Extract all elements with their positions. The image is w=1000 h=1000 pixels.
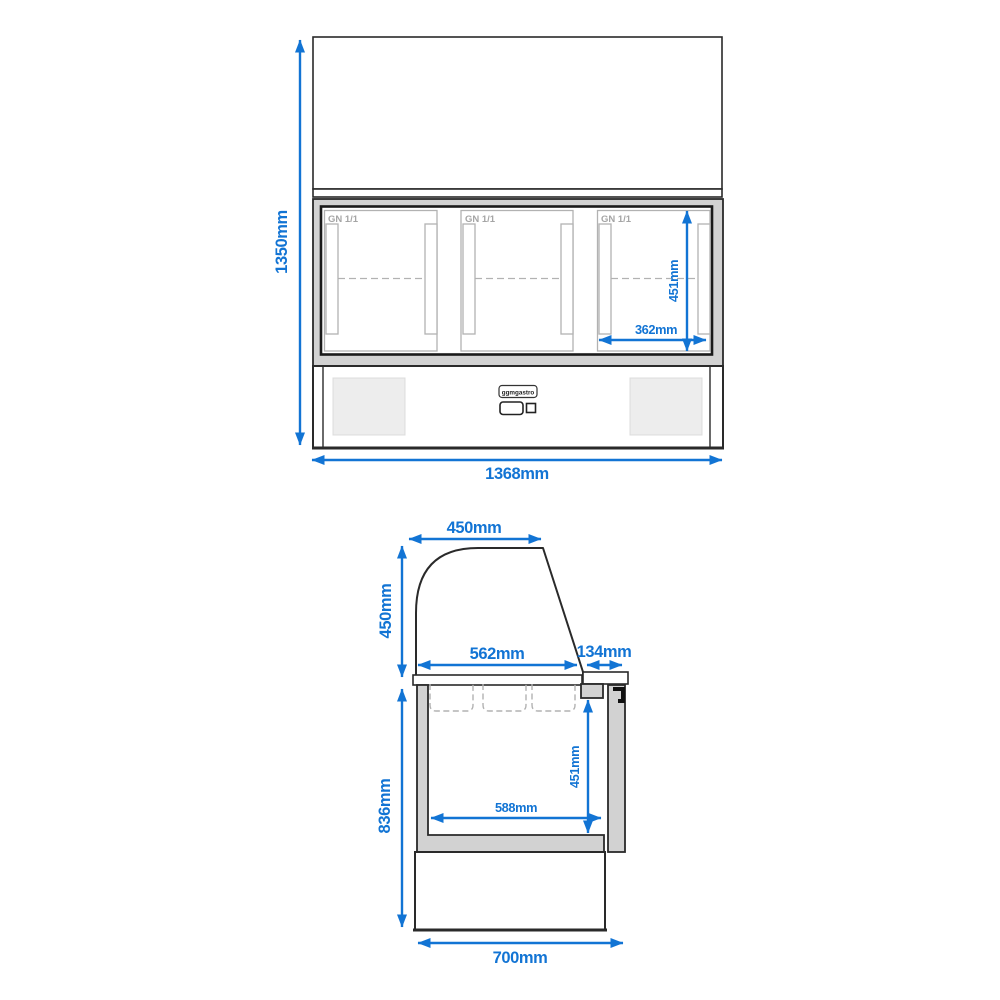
door-stile-right: [698, 224, 710, 334]
lower-cabinet: [415, 852, 605, 930]
gn-label: GN 1/1: [465, 214, 496, 225]
dim-overall-height: 1350mm: [273, 40, 300, 445]
controller-display: [500, 402, 523, 415]
dim-board-depth: 134mm: [577, 643, 632, 665]
dim-label-1350: 1350mm: [273, 210, 291, 274]
gn-label: GN 1/1: [601, 214, 632, 225]
door-stile-right: [425, 224, 437, 334]
technical-drawing-page: GN 1/1 GN 1/1 GN 1/1 ggmgastro: [0, 0, 1000, 1000]
dim-overall-width: 1368mm: [312, 460, 722, 483]
dim-well-depth: 588mm: [431, 800, 601, 818]
dim-label-562: 562mm: [470, 645, 525, 663]
cutting-board: [583, 672, 628, 684]
dim-label-134: 134mm: [577, 643, 632, 661]
gn-label: GN 1/1: [328, 214, 359, 225]
dim-well-height: 451mm: [567, 700, 588, 833]
front-top-strip: [313, 189, 722, 197]
controller-button: [527, 404, 536, 413]
gn-pan-dashed-3: [532, 684, 575, 711]
gn-pan-dashed-1: [430, 684, 473, 711]
dim-label-1368: 1368mm: [485, 465, 549, 483]
dim-label-700: 700mm: [493, 949, 548, 967]
front-view: GN 1/1 GN 1/1 GN 1/1 ggmgastro: [273, 37, 724, 483]
gn-pan-dashed-2: [483, 684, 526, 711]
dim-label-450-left: 450mm: [377, 584, 395, 639]
dim-label-451-side: 451mm: [567, 746, 582, 788]
dim-body-height: 836mm: [376, 689, 402, 927]
door-stile-left: [463, 224, 475, 334]
board-support-block: [581, 684, 603, 698]
door-stile-left: [599, 224, 611, 334]
dim-glass-height: 450mm: [377, 546, 402, 677]
door-stile-left: [326, 224, 338, 334]
rear-panel: [608, 685, 625, 852]
brand-logo-text: ggmgastro: [502, 389, 535, 396]
dimension-drawing: GN 1/1 GN 1/1 GN 1/1 ggmgastro: [0, 0, 1000, 1000]
worktop: [413, 675, 582, 685]
dim-glass-depth: 450mm: [409, 519, 541, 539]
dim-overall-depth: 700mm: [418, 943, 623, 967]
side-view: 450mm 450mm 562mm 134mm 836mm 451mm 588m…: [376, 519, 631, 967]
dim-label-836: 836mm: [376, 779, 394, 834]
vent-grille-right: [630, 378, 702, 435]
door-stile-right: [561, 224, 573, 334]
vent-grille-left: [333, 378, 405, 435]
dim-label-588: 588mm: [495, 800, 537, 815]
front-glass-lid: [313, 37, 722, 189]
dim-label-450-top: 450mm: [447, 519, 502, 537]
dim-label-362: 362mm: [635, 322, 677, 337]
dim-label-451-front: 451mm: [666, 260, 681, 302]
